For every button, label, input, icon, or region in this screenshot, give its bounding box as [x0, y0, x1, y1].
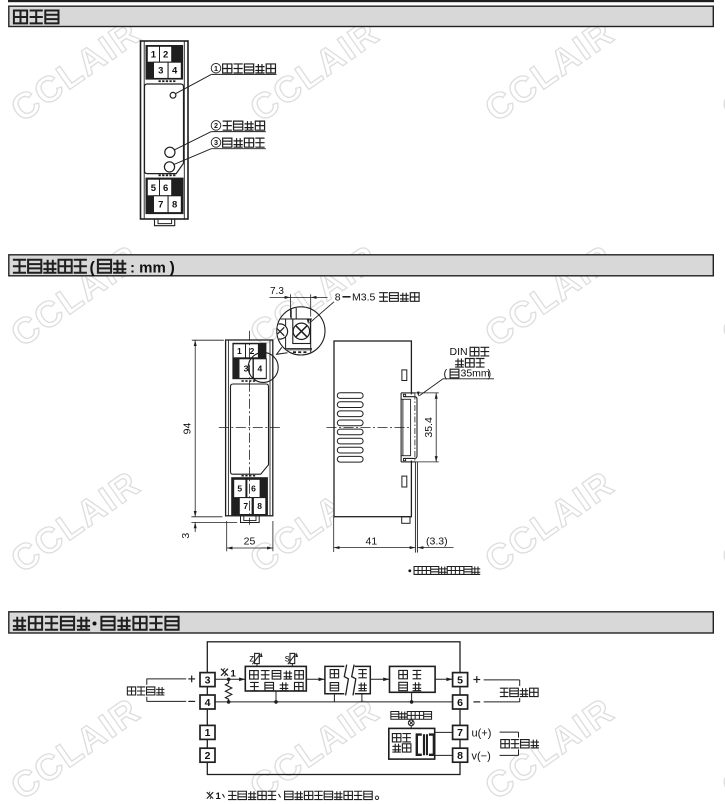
- svg-text:8: 8: [335, 291, 341, 303]
- svg-text:CCLAIR: CCLAIR: [242, 689, 387, 804]
- svg-text:: mm: : mm: [130, 260, 166, 277]
- svg-text:3: 3: [205, 674, 211, 686]
- svg-text:(3.3): (3.3): [426, 536, 448, 548]
- svg-text:CCLAIR: CCLAIR: [3, 236, 148, 354]
- svg-text:7: 7: [457, 727, 463, 739]
- svg-text:): ): [488, 368, 492, 380]
- svg-text:CCLAIR: CCLAIR: [714, 236, 725, 354]
- svg-text:4: 4: [205, 697, 211, 709]
- svg-text:8: 8: [457, 750, 463, 762]
- svg-text:CCLAIR: CCLAIR: [714, 689, 725, 804]
- svg-text:35.4: 35.4: [423, 417, 435, 438]
- svg-text:5: 5: [237, 484, 242, 494]
- svg-text:4: 4: [172, 66, 178, 77]
- svg-text:6: 6: [251, 484, 256, 494]
- svg-text:v(−): v(−): [472, 751, 491, 763]
- svg-text:8: 8: [257, 501, 262, 511]
- svg-text:(: (: [90, 260, 96, 277]
- svg-text:CCLAIR: CCLAIR: [477, 236, 622, 354]
- svg-text:7: 7: [158, 200, 163, 211]
- svg-text:5: 5: [457, 674, 463, 686]
- svg-text:CCLAIR: CCLAIR: [477, 11, 622, 129]
- svg-text:3: 3: [214, 138, 218, 147]
- svg-text:1: 1: [151, 50, 157, 61]
- svg-text:94: 94: [181, 423, 193, 435]
- svg-text:3: 3: [180, 533, 192, 539]
- svg-text:1: 1: [237, 346, 242, 356]
- svg-text:CCLAIR: CCLAIR: [3, 689, 148, 804]
- svg-text:CCLAIR: CCLAIR: [477, 462, 622, 580]
- svg-text:4: 4: [257, 364, 262, 374]
- svg-text:2: 2: [250, 346, 255, 356]
- svg-text:CCLAIR: CCLAIR: [714, 462, 725, 580]
- svg-text:CCLAIR: CCLAIR: [3, 11, 148, 129]
- svg-text:1: 1: [216, 791, 222, 802]
- svg-text:(: (: [444, 368, 448, 380]
- svg-text:2: 2: [214, 121, 218, 130]
- svg-text:2: 2: [163, 50, 168, 61]
- svg-text:6: 6: [163, 183, 168, 194]
- svg-text:8: 8: [172, 200, 177, 211]
- svg-text:3: 3: [158, 66, 163, 77]
- svg-text:5: 5: [151, 183, 157, 194]
- svg-text:6: 6: [457, 697, 463, 709]
- svg-text:DIN: DIN: [450, 346, 468, 358]
- svg-text:M3.5: M3.5: [352, 291, 376, 303]
- svg-text:25: 25: [244, 535, 256, 547]
- svg-text:CCLAIR: CCLAIR: [714, 11, 725, 129]
- svg-text:2: 2: [205, 750, 211, 762]
- svg-text:1: 1: [231, 669, 237, 680]
- svg-text:1: 1: [205, 727, 211, 739]
- svg-text:CCLAIR: CCLAIR: [3, 462, 148, 580]
- svg-text:41: 41: [366, 535, 378, 547]
- svg-text:35mm: 35mm: [461, 368, 490, 380]
- svg-text:7: 7: [243, 501, 248, 511]
- svg-text:): ): [170, 260, 175, 277]
- svg-text:7.3: 7.3: [270, 286, 284, 297]
- svg-text:1: 1: [214, 64, 218, 73]
- svg-text:u(+): u(+): [472, 728, 492, 740]
